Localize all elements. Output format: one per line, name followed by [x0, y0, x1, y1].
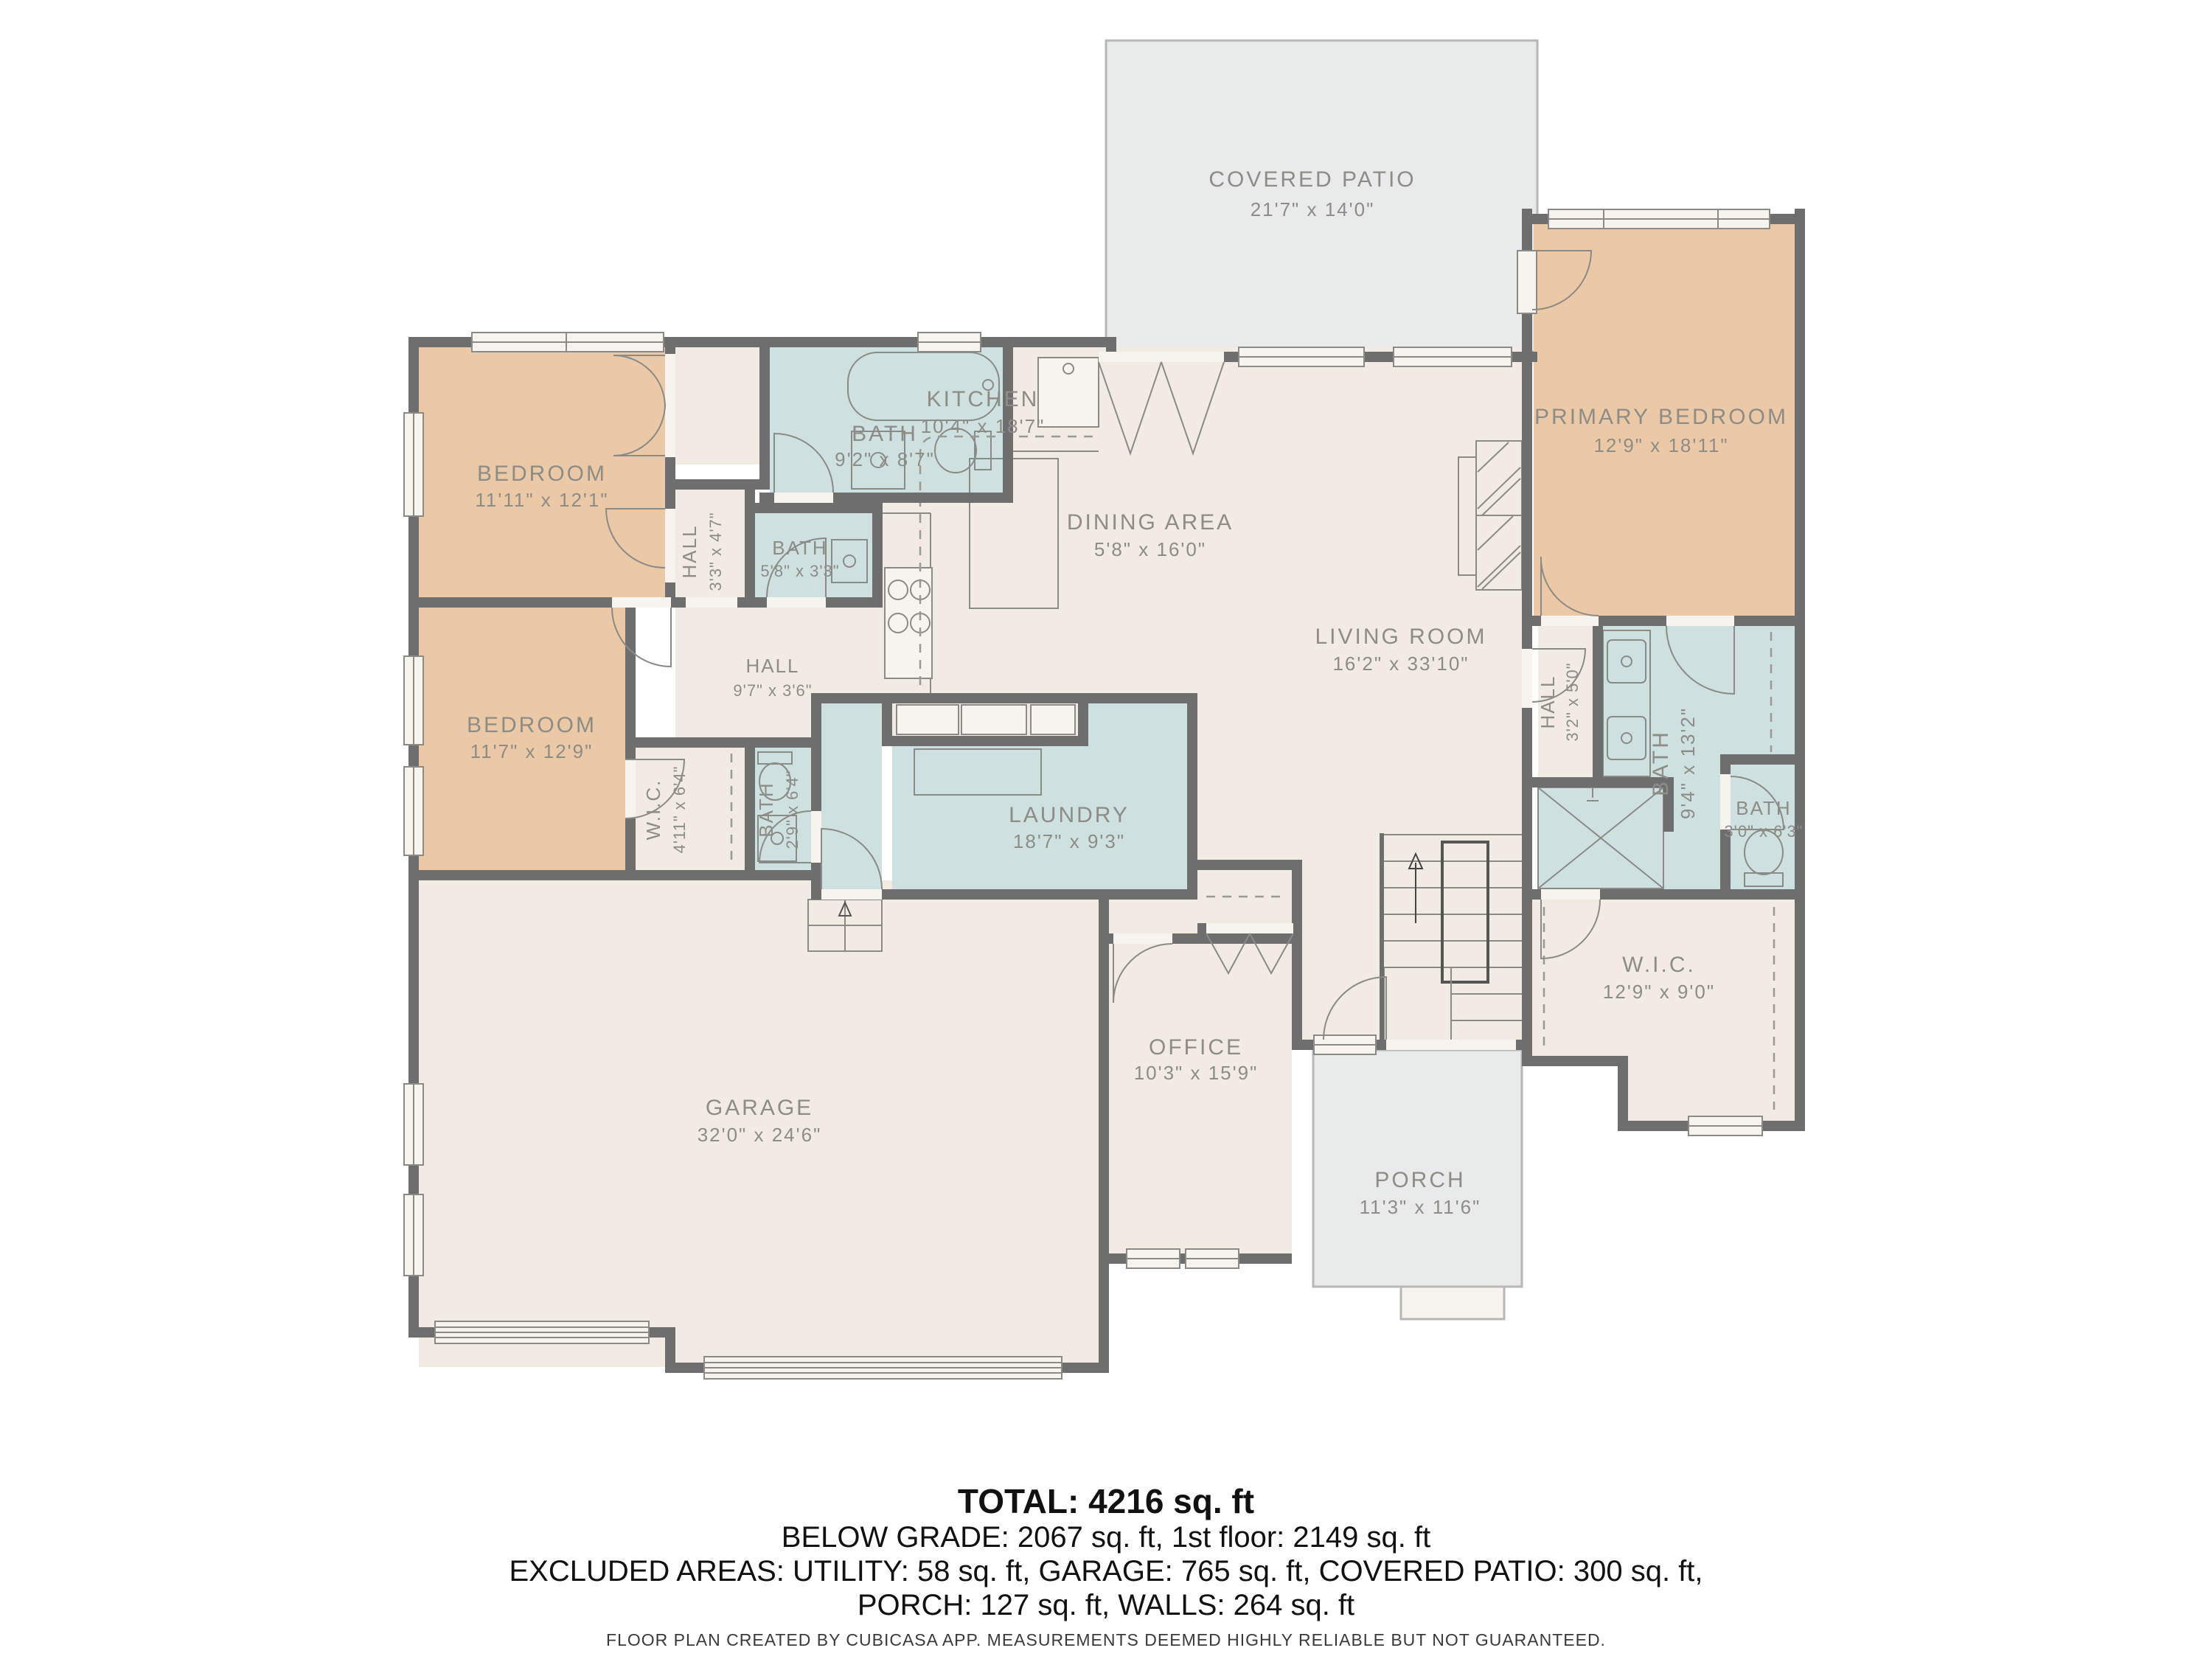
- label-porch: PORCH: [1374, 1168, 1465, 1192]
- summary-line2: BELOW GRADE: 2067 sq. ft, 1st floor: 214…: [782, 1521, 1430, 1554]
- window: [918, 333, 981, 352]
- label-bath-main-dims: 9'2" x 8'7": [835, 448, 935, 470]
- summary-line3: EXCLUDED AREAS: UTILITY: 58 sq. ft, GARA…: [509, 1555, 1703, 1587]
- label-dining-dims: 5'8" x 16'0": [1094, 538, 1206, 560]
- label-laundry: LAUNDRY: [1009, 803, 1130, 827]
- closet-top-floor: [675, 347, 759, 465]
- label-primary-wic: W.I.C.: [1622, 953, 1696, 977]
- label-toilet-room: BATH: [1736, 797, 1791, 819]
- label-hall-suite-dims: 3'2" x 5'0": [1563, 662, 1582, 741]
- window: [404, 1084, 423, 1165]
- label-office-dims: 10'3" x 15'9": [1134, 1062, 1259, 1084]
- label-covered-patio: COVERED PATIO: [1208, 167, 1416, 192]
- window: [1127, 1249, 1180, 1268]
- kitchen-sink: [1038, 358, 1099, 427]
- window: [404, 767, 423, 855]
- label-primary-bedroom: PRIMARY BEDROOM: [1534, 405, 1788, 429]
- label-laundry-dims: 18'7" x 9'3": [1013, 830, 1125, 852]
- label-primary-bedroom-dims: 12'9" x 18'11": [1593, 434, 1728, 456]
- label-bath-small: BATH: [772, 537, 827, 559]
- label-living-dims: 16'2" x 33'10": [1332, 653, 1469, 675]
- dryer: [961, 705, 1026, 734]
- label-hall-small-dims: 3'3" x 4'7": [706, 512, 725, 591]
- label-living: LIVING ROOM: [1315, 625, 1486, 649]
- laundry-arm-floor: [821, 703, 882, 889]
- label-garage: GARAGE: [706, 1096, 813, 1120]
- label-covered-patio-dims: 21'7" x 14'0": [1251, 198, 1375, 220]
- garage-door: [704, 1357, 1062, 1379]
- porch-step: [1401, 1287, 1504, 1319]
- label-porch-dims: 11'3" x 11'6": [1360, 1196, 1481, 1218]
- summary-block: TOTAL: 4216 sq. ft BELOW GRADE: 2067 sq.…: [509, 1482, 1703, 1649]
- window: [404, 656, 423, 745]
- label-bedroom-top: BEDROOM: [477, 462, 607, 486]
- window: [1394, 347, 1512, 366]
- window: [472, 333, 664, 352]
- covered-patio-area: [1106, 41, 1537, 352]
- label-primary-bath: BATH: [1649, 730, 1673, 796]
- label-toilet-room-dims: 3'0" x 6'3": [1724, 822, 1803, 841]
- label-primary-bath-dims: 9'4" x 13'2": [1677, 707, 1699, 819]
- label-hall-small: HALL: [678, 524, 700, 578]
- summary-total: TOTAL: 4216 sq. ft: [958, 1482, 1254, 1520]
- label-office: OFFICE: [1149, 1035, 1243, 1060]
- label-bath-lower: BATH: [755, 782, 777, 837]
- label-bath-small-dims: 5'8" x 3'3": [760, 562, 839, 580]
- bedroom-bottom-floor: [419, 608, 625, 870]
- label-garage-dims: 32'0" x 24'6": [698, 1124, 822, 1146]
- label-bedroom-bottom-dims: 11'7" x 12'9": [470, 740, 594, 762]
- window: [1239, 347, 1364, 366]
- label-hall-main-dims: 9'7" x 3'6": [733, 681, 812, 700]
- label-hall-main: HALL: [745, 655, 799, 677]
- primary-wic-floor: [1532, 900, 1795, 1056]
- label-wic-small: W.I.C.: [642, 779, 664, 841]
- label-primary-wic-dims: 12'9" x 9'0": [1603, 981, 1715, 1003]
- label-hall-suite: HALL: [1537, 675, 1559, 728]
- office-floor: [1109, 944, 1292, 1253]
- label-bath-lower-dims: 2'9" x 6'4": [783, 770, 801, 849]
- label-bedroom-bottom: BEDROOM: [467, 713, 597, 737]
- washer: [897, 705, 959, 734]
- patio-door-band: [1517, 251, 1537, 313]
- label-wic-small-dims: 4'11" x 6'4": [670, 766, 689, 854]
- footer-disclaimer: FLOOR PLAN CREATED BY CUBICASA APP. MEAS…: [606, 1630, 1606, 1649]
- window: [1186, 1249, 1239, 1268]
- label-kitchen-dims: 10'4" x 18'7": [921, 415, 1046, 437]
- window: [1688, 1116, 1762, 1135]
- label-kitchen: KITCHEN: [927, 387, 1040, 411]
- summary-line4: PORCH: 127 sq. ft, WALLS: 264 sq. ft: [858, 1589, 1354, 1621]
- label-dining: DINING AREA: [1067, 510, 1234, 535]
- window: [1548, 209, 1770, 229]
- window: [404, 1194, 423, 1276]
- floor-plan: COVERED PATIO 21'7" x 14'0" PRIMARY BEDR…: [0, 0, 2212, 1659]
- label-bedroom-top-dims: 11'11" x 12'1": [475, 489, 608, 511]
- garage-door: [435, 1321, 649, 1343]
- window: [404, 413, 423, 516]
- label-bath-main: BATH: [852, 422, 918, 446]
